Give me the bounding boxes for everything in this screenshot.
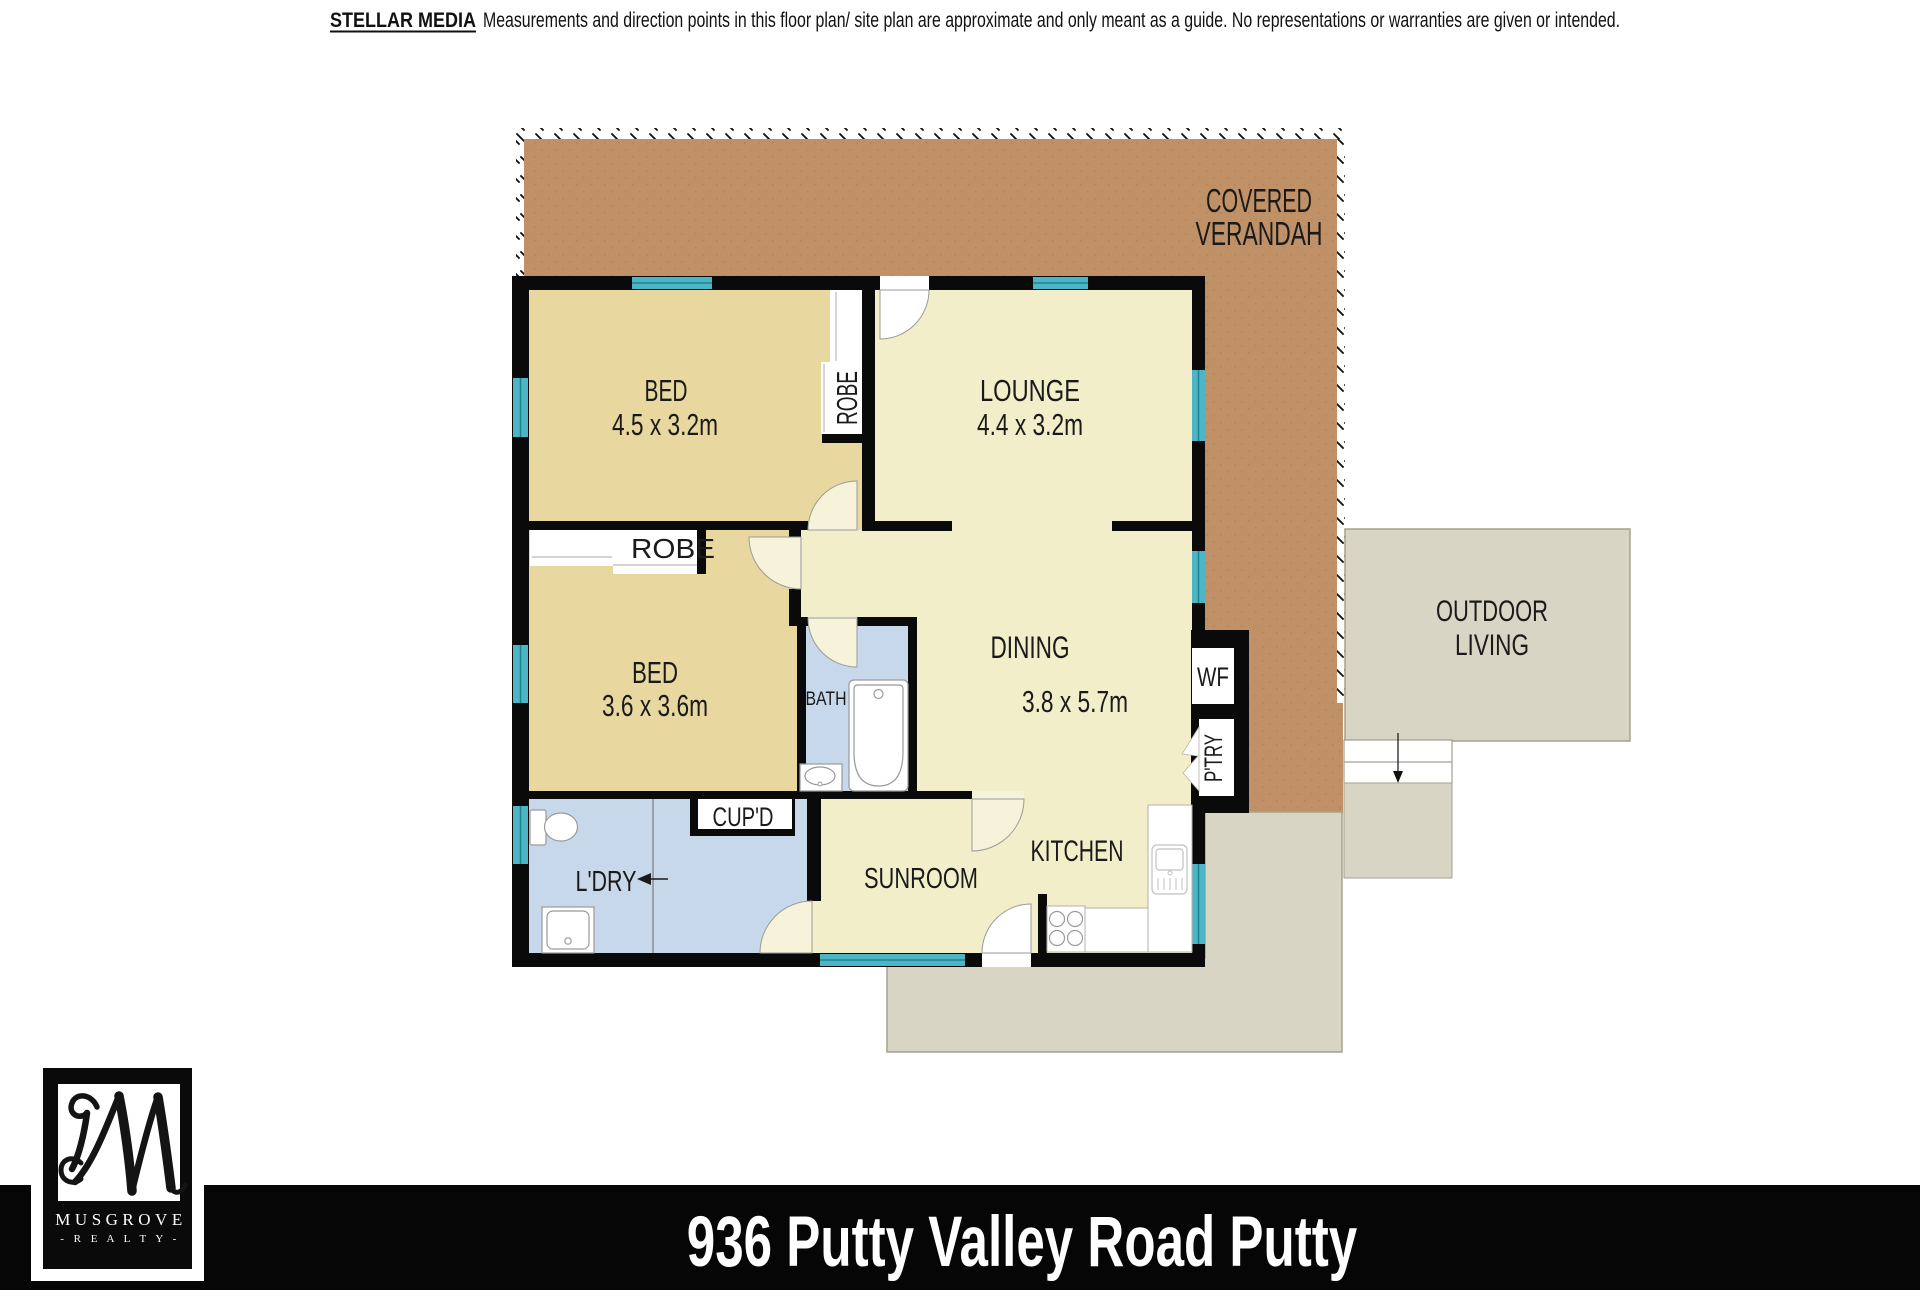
svg-text:- R E A L T Y -: - R E A L T Y -: [60, 1233, 180, 1245]
svg-text:MUSGROVE: MUSGROVE: [55, 1210, 186, 1229]
svg-text:L'DRY: L'DRY: [576, 866, 637, 898]
svg-text:BATH: BATH: [806, 689, 847, 710]
svg-text:4.4 x 3.2m: 4.4 x 3.2m: [977, 407, 1083, 442]
svg-text:BED: BED: [645, 373, 688, 408]
svg-text:LOUNGE: LOUNGE: [980, 373, 1080, 408]
svg-text:BED: BED: [632, 655, 678, 690]
svg-text:KITCHEN: KITCHEN: [1031, 835, 1124, 868]
svg-text:CUP'D: CUP'D: [713, 802, 774, 832]
svg-text:WF: WF: [1197, 662, 1229, 692]
svg-text:Measurements and direction poi: Measurements and direction points in thi…: [483, 8, 1620, 32]
svg-text:3.8 x 5.7m: 3.8 x 5.7m: [1022, 684, 1128, 719]
svg-text:3.6 x 3.6m: 3.6 x 3.6m: [602, 688, 708, 723]
svg-text:STELLAR MEDIA: STELLAR MEDIA: [330, 8, 476, 32]
svg-text:SUNROOM: SUNROOM: [864, 863, 978, 895]
svg-text:936 Putty Valley Road Putty: 936 Putty Valley Road Putty: [687, 1203, 1358, 1282]
svg-text:ROBE: ROBE: [832, 371, 864, 425]
svg-text:LIVING: LIVING: [1455, 629, 1529, 662]
svg-text:OUTDOOR: OUTDOOR: [1436, 595, 1548, 628]
svg-text:DINING: DINING: [991, 629, 1070, 665]
svg-text:VERANDAH: VERANDAH: [1196, 215, 1323, 252]
svg-text:4.5 x 3.2m: 4.5 x 3.2m: [612, 407, 718, 442]
svg-text:P'TRY: P'TRY: [1200, 734, 1228, 782]
svg-text:ROBE: ROBE: [631, 533, 715, 564]
svg-text:COVERED: COVERED: [1206, 182, 1312, 219]
